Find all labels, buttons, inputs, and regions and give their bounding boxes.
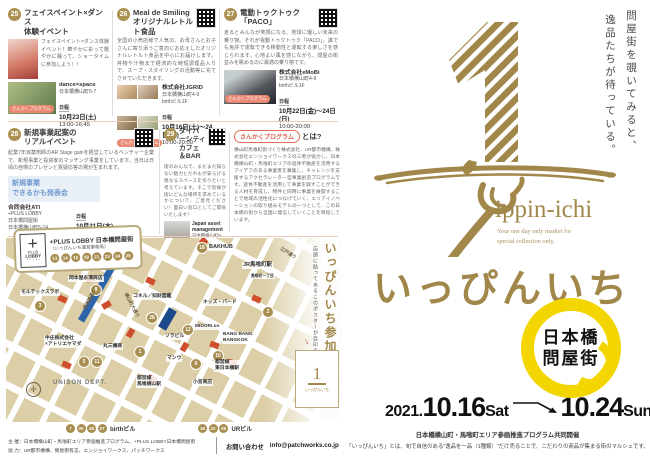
map-label: UNISON DEPT. [52,380,108,387]
group-dance-photo: さんかくプログラム [8,82,56,114]
qr-code-icon [196,8,216,28]
shop-marker [209,341,220,350]
event-description: 全国の小売店様で人気の、お母さんとお子さんに寄り添うご意向にお応えしたオリジナル… [117,38,216,83]
plus-lobby-office-box: ＋ PLUS LOBBY ・・・・・ +PLUS LOBBY 日本橋問屋街 （い… [13,225,142,273]
contact-email: info@patchworks.co.jp [270,442,339,451]
date-start: 10.16 [423,392,486,423]
event-card-28: 28 新規事業起案の リアルイベント 起業7年目薬剤師のAR Stage gai… [8,128,154,236]
qr-code-icon [318,8,338,28]
event-card-25: 25 フェイスペイント×ダンス 体験イベント フェイスペイント×ダンス体験イベン… [8,8,109,118]
shop-marker [145,276,156,285]
event-title: Meal de Smiling オリジナルレトルト食品 [133,8,193,36]
map-label: 丸三機商 [102,344,123,350]
map-number-circle: 1 [134,346,146,358]
shop-number: 19 [82,253,91,262]
column-divider [112,10,113,116]
event-dates: 2021. 10.16 Sat 10.24 Sun [385,392,650,423]
shop-number: 16 [198,424,207,433]
event-card-27: 27 電動トゥクトゥク 「PACO」 走るとみんなが笑顔になる、地球に優しい未来… [224,8,338,118]
shop-marker [180,342,190,353]
tagline-line1: 問屋街を覗いてみると、 [623,10,638,153]
sankaku-program-box: さんかくプログラム とは? 横山町馬喰町街づくり株式会社、UR都市機構、株式会社… [234,130,340,238]
shop-number: 15 [71,253,80,262]
sankaku-program-description: 横山町馬喰町街づくり株式会社、UR都市機構、株式会社エンジョイワークスの三者が協… [234,146,340,224]
venue-address: 日本橋横山町5-7 [59,89,109,96]
map-label: BAKHUB [208,244,234,251]
event-card-29: 29 ダイバーシティカフェ ＆BAR 街のみんなで、まだまだ知らない魅力とだれも… [164,128,226,236]
map-label-station: JR馬喰町駅 [242,262,273,269]
map-label: 小宮商店 [192,380,213,386]
plus-lobby-logo-dots: ・・・・・ [26,259,41,263]
shop-number: 24 [113,251,122,260]
logo-english: ippin-ichi [495,196,592,224]
dancer-photo [8,39,38,79]
right-page: 問屋街を覗いてみると、 逸品たちが待っている。 ippin-ichi Y [345,0,650,460]
map-label: モルテックスラボ [20,290,60,296]
qr-code-icon [208,128,226,146]
event-title: 電動トゥクトゥク 「PACO」 [240,8,315,27]
shop-marker [61,360,72,369]
venue-name: 合同会社ATI [8,205,70,212]
event-description: 走るとみんなが笑顔になる、地球に優しい未来の乗り物。それが電動トゥクトゥク「PA… [224,30,338,68]
row-divider [8,121,338,122]
shop-number: 26 [87,424,96,433]
qr-code-icon [134,128,154,148]
legend-ur-building: 16 22 29 URビル [198,424,252,433]
map-label: 馬喰町一丁目 [250,274,275,279]
program-badge: さんかくプログラム [9,105,54,113]
shop-marker [101,300,112,310]
event-number-badge: 27 [224,8,237,21]
schedule-label: 日程 [76,213,86,221]
contact-label: お問い合わせ [226,442,264,451]
venue-address: 日本橋横山町4-9 birthビル1F [279,76,338,90]
sankaku-program-title: とは? [302,131,322,142]
map-number-circle: 5 [78,356,90,368]
event-description: 起業7年目薬剤師のAR Stage gainを経営しているベンチャー企業で、新規… [8,150,154,173]
map-label: MIDORI.so [194,324,220,330]
plus-lobby-logo: ＋ PLUS LOBBY ・・・・・ [19,233,46,268]
event-title: 新規事業起案の リアルイベント [24,128,131,147]
map-label: ソラビル [164,334,185,340]
map-label: 岡本屋永澤商店 [68,276,104,282]
retort-food-photo [138,85,158,99]
organizer-line: 主 催：日本橋横山町・馬喰町エリア参画推進プログラム、+PLUS LOBBY日本… [8,438,195,445]
shop-number: 25 [124,251,133,260]
column-divider [219,10,220,116]
tuktuk-photo: さんかくプログラム [224,70,276,104]
location-ring-badge: 日本橋 問屋街 [521,298,621,398]
event-description: 街のみんなで、まだまだ知らない魅力とだれもが安らげる異なるスペースを作りたいと考… [164,164,226,219]
footer-divider [216,437,217,454]
map-label: キッズ・バード [202,300,238,306]
map-label: マンウ [166,356,182,362]
shop-number: 14 [61,253,70,262]
map-number-circle: 18 [196,242,208,254]
date-start-day: Sat [485,403,508,421]
shop-number: 29 [219,424,228,433]
map-label: BANG BANG BANGKOK [222,332,254,344]
venue-name: Japan asset management [192,221,226,233]
sankaku-program-badge: さんかくプログラム [234,130,300,143]
schedule-label: 日程 [59,104,69,112]
shop-number: 27 [98,424,107,433]
contact-block: お問い合わせ info@patchworks.co.jp [226,442,339,451]
date-arrow-icon [512,398,558,416]
shop-number: 13 [50,254,59,263]
event-title: フェイスペイント×ダンス 体験イベント [24,8,109,36]
poster-thumbnail-glyph: 1 [308,365,327,385]
shop-marker [251,294,262,303]
legend-birth-building: 7 20 26 27 birthビル [66,424,135,433]
cooperation-line: 協 力：UR都市機構、問屋街有志、エンジョイワークス、パッチワークス [8,447,165,454]
column-divider [229,132,230,232]
event-description: フェイスペイント×ダンス体験イベント！華やかに彩って軽やかに踊って、ショータイム… [41,39,109,79]
schedule-label: 日程 [279,98,289,106]
co-host-line: 日本橋横山町・馬喰町エリア参画推進プログラム共同開催 [345,430,650,439]
event-title: ダイバーシティカフェ ＆BAR [179,128,206,162]
rail-station-shape [158,307,177,331]
column-divider [159,130,160,234]
pitch-event-banner: 新規事業 できるかも発表会 [8,176,100,202]
compass-icon: ✛ [26,382,41,397]
building-name: birthビル [110,424,135,433]
shop-marker [126,328,136,339]
date-end-day: Sun [623,403,650,421]
event-description-line: 「いっぴんいち」とは、旬で自信のある"逸品を一品（1種類）"だけ売ることで、こだ… [345,442,650,450]
striped-one-glyph [449,22,518,162]
map-number-circle: 28 [146,312,158,324]
map-label: 中庄株式会社 ×アトリエヤマダ [44,336,82,348]
map-label-station: 都営線 馬喰横山駅 [136,376,162,388]
event-number-badge: 29 [164,128,177,141]
program-badge: さんかくプログラム [225,95,270,103]
map-label: コネル／知財図鑑 [132,294,172,300]
map-number-circle: 6 [190,358,202,370]
poster-thumbnail: 1 いっぴんいち [295,350,339,408]
shop-number: 7 [66,424,75,433]
logo-tagline-english: Your one day only market for special col… [497,227,571,247]
poster-thumbnail-text: いっぴんいち [305,387,329,393]
shop-number: 20 [77,424,86,433]
event-number-badge: 26 [117,8,130,21]
flyer: 25 フェイスペイント×ダンス 体験イベント フェイスペイント×ダンス体験イベン… [0,0,650,460]
map-number-circle: 11 [91,356,103,368]
map-side-note: 店頭に貼ってあるこのポスターが目印です! [312,246,319,362]
date-year: 2021. [385,403,423,421]
left-page: 25 フェイスペイント×ダンス 体験イベント フェイスペイント×ダンス体験イベン… [0,0,345,460]
event-card-26: 26 Meal de Smiling オリジナルレトルト食品 全国の小売店様で人… [117,8,216,118]
shop-number: 21 [92,252,101,261]
map-label-station: 都営線 東日本橋駅 [214,360,240,372]
shop-marker [57,294,68,303]
event-number-badge: 25 [8,8,21,21]
venue-address: 日本橋横山町4-9 birthビル1F [162,92,216,106]
map-number-circle: 3 [34,300,46,312]
shop-number: 22 [209,424,218,433]
shop-number: 23 [103,252,112,261]
event-number-badge: 28 [8,128,21,141]
map-number-circle: 2 [262,306,274,318]
building-name: URビル [232,424,253,433]
retort-food-photo [117,85,137,99]
